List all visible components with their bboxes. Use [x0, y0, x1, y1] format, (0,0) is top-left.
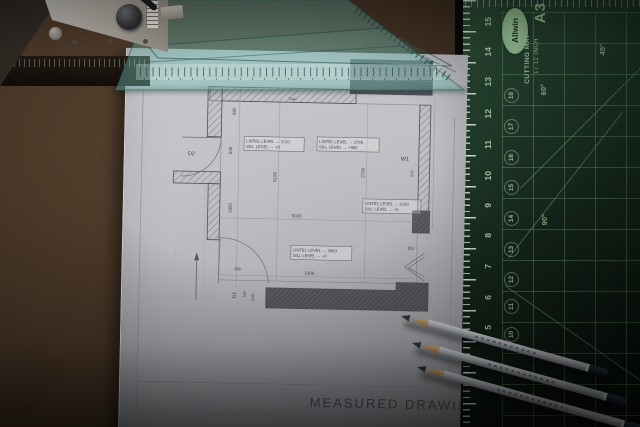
dim-mid-height: 5185 — [272, 171, 277, 182]
mat-angle-45: 45° — [598, 44, 607, 55]
mat-size-label: A3 — [532, 2, 549, 23]
allwin-brand-text: Allwin — [510, 18, 520, 43]
annotation-line: SILL LEVEL → +0 — [365, 206, 400, 212]
mat-number: 7 — [483, 264, 493, 269]
mat-circled-number: 18 — [504, 88, 519, 103]
mat-number: 5 — [483, 325, 493, 330]
dim-window-len: 975 — [410, 170, 414, 176]
mat-circled-number: 11 — [504, 299, 519, 314]
mat-circled-number: 10 — [504, 327, 519, 342]
dim-door-b: 1145 — [251, 294, 255, 302]
mat-circled-number: 13 — [504, 242, 519, 257]
mat-circled-number: 17 — [504, 119, 519, 134]
mat-number: 6 — [483, 295, 493, 300]
dim-left-mid: 645 — [228, 146, 233, 154]
mat-circled-number: 15 — [504, 180, 519, 195]
dim-room-width: 5025 — [292, 213, 303, 218]
tool-clamp — [160, 5, 183, 20]
annotation-line: SILL LEVEL → +0 — [293, 253, 328, 259]
dim-left-lower: 1950 — [228, 202, 233, 213]
photo-scene: 15 14 13 12 11 10 9 8 7 6 5 18 17 16 15 … — [0, 0, 640, 427]
dim-right-height: 2790 — [360, 167, 365, 178]
rivet — [143, 39, 148, 44]
mat-number: 12 — [483, 109, 493, 118]
annotation-line: SILL LEVEL → +0 — [246, 144, 281, 150]
mat-circled-number: 14 — [504, 211, 519, 226]
mat-number: 13 — [483, 77, 493, 86]
mat-top-ticks — [465, 0, 640, 7]
label-d3: D3 — [408, 246, 414, 251]
adjustable-square-head — [0, 0, 195, 70]
section-arrow — [193, 252, 199, 299]
mat-circled-number: 12 — [504, 272, 519, 287]
sheet-title: MEASURED DRAWING — [310, 395, 467, 414]
dim-left-upper: 890 — [232, 107, 237, 115]
dim-door-sill: 888 — [234, 267, 240, 271]
mat-number: 9 — [483, 203, 493, 208]
rivet — [72, 40, 77, 45]
mat-angle-90: 90° — [540, 214, 549, 225]
mat-angle-60: 60° — [539, 84, 548, 95]
label-d2: D2 — [188, 151, 195, 157]
rivet — [49, 27, 62, 40]
annotation-boxes: LINTEL LEVEL → 2110 SILL LEVEL → +0 LINT… — [242, 135, 423, 262]
mat-number: 15 — [483, 17, 493, 26]
mat-product-line1: CUTTING MAT — [524, 34, 531, 84]
mat-number: 10 — [483, 171, 493, 180]
label-w1: W1 — [401, 157, 409, 163]
annotation-line: SILL LEVEL → +965 — [319, 144, 358, 150]
mat-number: 14 — [483, 47, 493, 56]
mat-product-line2: 17 11 INCH — [534, 38, 540, 74]
rivet — [108, 39, 113, 44]
dim-bottom-opening: 1908 — [304, 271, 315, 276]
mat-circled-number: 16 — [504, 150, 519, 165]
mat-number: 8 — [483, 233, 493, 238]
mat-number: 11 — [483, 140, 493, 149]
label-d1: D1 — [232, 291, 238, 298]
tool-knob — [116, 4, 142, 30]
dim-door-a: 995 — [243, 291, 247, 297]
